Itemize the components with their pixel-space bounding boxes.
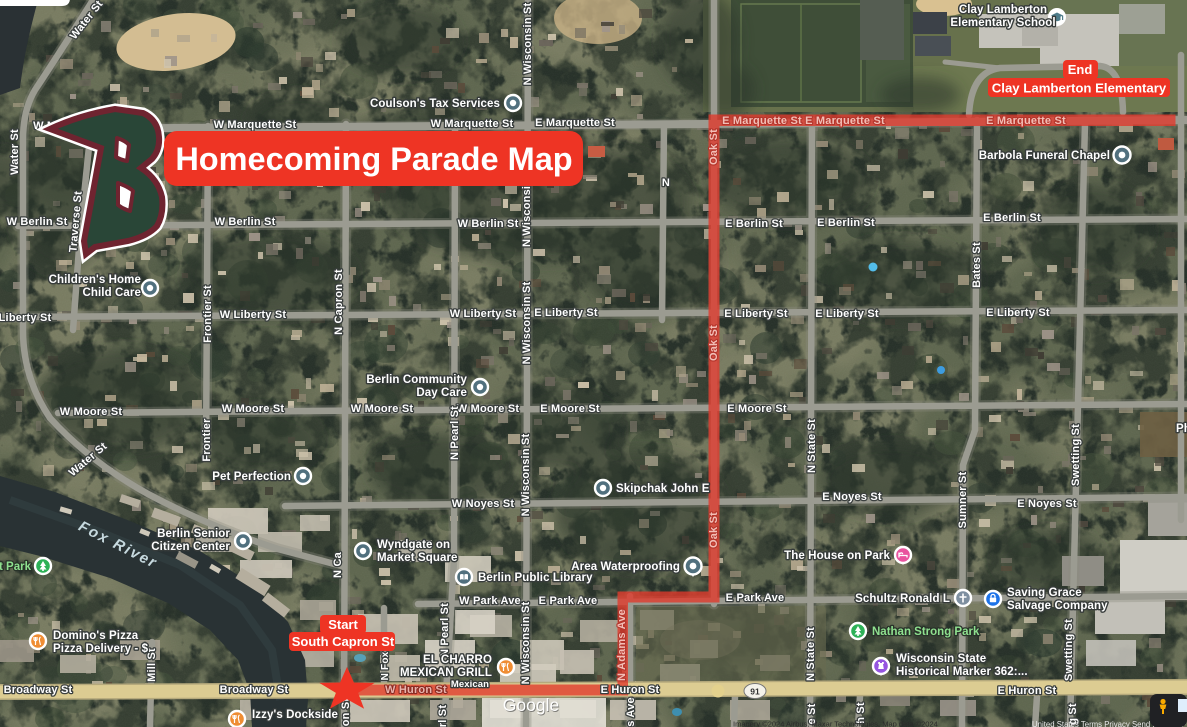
svg-text:Broadway St: Broadway St — [4, 684, 73, 696]
svg-text:N State St: N State St — [806, 419, 818, 473]
svg-text:Children's Home: Children's Home — [49, 274, 141, 286]
svg-text:N Adams Ave: N Adams Ave — [616, 609, 628, 681]
svg-text:The House on Park: The House on Park — [784, 550, 890, 562]
svg-text:N Fox: N Fox — [380, 651, 391, 680]
svg-text:ft Park: ft Park — [0, 561, 32, 573]
svg-text:E Noyes St: E Noyes St — [822, 491, 882, 503]
svg-text:Swetting St: Swetting St — [1063, 619, 1075, 681]
svg-text:W Noyes St: W Noyes St — [452, 498, 515, 510]
svg-text:E Marquette St: E Marquette St — [986, 115, 1066, 127]
svg-text:Clay Lamberton: Clay Lamberton — [959, 4, 1047, 16]
svg-text:Berlin Public Library: Berlin Public Library — [478, 572, 593, 584]
svg-text:Wisconsin State: Wisconsin State — [896, 653, 986, 665]
svg-text:E Huron St: E Huron St — [601, 684, 660, 696]
svg-text:N Pearl St: N Pearl St — [439, 603, 451, 657]
svg-text:N: N — [662, 177, 670, 189]
svg-text:E Liberty St: E Liberty St — [815, 308, 879, 320]
svg-text:E Marquette St: E Marquette St — [535, 117, 615, 129]
svg-text:Market Square: Market Square — [377, 552, 458, 564]
svg-text:91: 91 — [750, 687, 760, 697]
svg-text:Historical Marker 362:...: Historical Marker 362:... — [896, 666, 1028, 678]
svg-text:Nathan Strong Park: Nathan Strong Park — [872, 626, 980, 638]
svg-text:Coulson's Tax Services: Coulson's Tax Services — [370, 98, 500, 110]
svg-text:Area Waterproofing: Area Waterproofing — [571, 561, 680, 573]
svg-text:Wyndgate on: Wyndgate on — [377, 539, 450, 551]
svg-text:N Pearl St: N Pearl St — [449, 406, 461, 460]
svg-text:Citizen Center: Citizen Center — [151, 541, 230, 553]
svg-text:Saving Grace: Saving Grace — [1007, 587, 1082, 599]
svg-text:N Wisconsin St: N Wisconsin St — [522, 2, 534, 85]
svg-text:E Berlin St: E Berlin St — [725, 218, 783, 230]
svg-text:W Moore St: W Moore St — [60, 406, 123, 418]
svg-text:W Berlin St: W Berlin St — [7, 216, 68, 228]
svg-text:EL CHARRO: EL CHARRO — [423, 654, 492, 666]
svg-text:N Wisconsin St: N Wisconsin St — [521, 281, 533, 364]
svg-text:Imagery ©2024 Airbus, Maxar Te: Imagery ©2024 Airbus, Maxar Technologies… — [733, 720, 938, 727]
svg-text:Start: Start — [328, 617, 358, 632]
svg-text:End: End — [1068, 62, 1093, 77]
svg-text:Homecoming Parade Map: Homecoming Parade Map — [175, 141, 572, 177]
svg-text:Domino's Pizza: Domino's Pizza — [53, 630, 139, 642]
svg-text:Google: Google — [503, 695, 559, 715]
svg-text:Swetting St: Swetting St — [1070, 424, 1082, 486]
svg-text:N Wisconsin St: N Wisconsin St — [520, 601, 532, 684]
svg-text:Day Care: Day Care — [416, 387, 467, 399]
svg-text:Frontier St: Frontier St — [202, 285, 214, 343]
svg-text:Oak St: Oak St — [708, 512, 720, 548]
svg-text:Pet Perfection: Pet Perfection — [212, 471, 291, 483]
svg-text:E Moore St: E Moore St — [727, 403, 787, 415]
svg-text:MEXICAN GRILL: MEXICAN GRILL — [400, 667, 492, 679]
svg-text:Liberty St: Liberty St — [0, 312, 51, 324]
svg-text:E Berlin St: E Berlin St — [817, 217, 875, 229]
svg-text:Oak St: Oak St — [708, 325, 720, 361]
svg-text:N Wisconsin: N Wisconsin — [521, 179, 533, 247]
svg-text:E Marquette St: E Marquette St — [805, 115, 885, 127]
svg-text:South Capron St: South Capron St — [292, 634, 395, 649]
svg-text:N Capron St: N Capron St — [333, 269, 345, 335]
svg-text:Water St: Water St — [9, 129, 21, 175]
svg-text:E Liberty St: E Liberty St — [534, 307, 598, 319]
svg-text:N State St: N State St — [805, 627, 817, 681]
svg-text:Salvage Company: Salvage Company — [1007, 600, 1108, 612]
svg-text:Child Care: Child Care — [82, 287, 141, 299]
svg-text:Clay Lamberton Elementary: Clay Lamberton Elementary — [992, 81, 1167, 96]
svg-text:Izzy's Dockside: Izzy's Dockside — [252, 709, 338, 721]
svg-text:Mexican: Mexican — [451, 679, 489, 690]
svg-text:E Liberty St: E Liberty St — [724, 308, 788, 320]
svg-text:Oak St: Oak St — [708, 129, 720, 165]
svg-text:W Marquette St: W Marquette St — [431, 118, 514, 130]
svg-text:W Moore St: W Moore St — [457, 403, 520, 415]
svg-text:W Berlin St: W Berlin St — [458, 218, 519, 230]
svg-text:W Moore St: W Moore St — [351, 403, 414, 415]
svg-text:E Park Ave: E Park Ave — [726, 592, 785, 604]
svg-text:W Berlin St: W Berlin St — [215, 216, 276, 228]
svg-text:Elementary School: Elementary School — [950, 17, 1055, 29]
svg-text:N Wisconsin St: N Wisconsin St — [520, 433, 532, 516]
svg-text:W Huron St: W Huron St — [385, 684, 447, 696]
svg-text:Berlin Senior: Berlin Senior — [157, 528, 230, 540]
svg-text:Pizza Delivery - $: Pizza Delivery - $ — [53, 643, 149, 655]
svg-text:E Berlin St: E Berlin St — [983, 212, 1041, 224]
svg-text:W Park Ave: W Park Ave — [459, 595, 521, 607]
svg-text:W Liberty St: W Liberty St — [450, 308, 517, 320]
svg-text:Schultz Ronald L: Schultz Ronald L — [855, 593, 950, 605]
svg-text:W Liberty St: W Liberty St — [220, 309, 287, 321]
svg-text:E Liberty St: E Liberty St — [986, 307, 1050, 319]
svg-text:Berlin Community: Berlin Community — [366, 374, 467, 386]
svg-text:Barbola Funeral Chapel: Barbola Funeral Chapel — [979, 150, 1110, 162]
svg-text:rl St: rl St — [437, 705, 449, 727]
svg-text:Frontier: Frontier — [201, 418, 213, 462]
svg-text:W Marquette St: W Marquette St — [214, 119, 297, 131]
svg-text:E Huron St: E Huron St — [998, 685, 1057, 697]
svg-text:s Ave: s Ave — [625, 697, 637, 727]
svg-text:E Park Ave: E Park Ave — [539, 595, 598, 607]
svg-text:N Ca: N Ca — [332, 551, 344, 578]
svg-text:W Moore St: W Moore St — [222, 403, 285, 415]
svg-text:E Noyes St: E Noyes St — [1017, 498, 1077, 510]
svg-text:Broadway St: Broadway St — [220, 684, 289, 696]
svg-text:Skipchak John E: Skipchak John E — [616, 483, 710, 495]
svg-text:E Moore St: E Moore St — [540, 403, 600, 415]
svg-text:Sumner St: Sumner St — [957, 471, 969, 528]
svg-text:Ph: Ph — [1176, 423, 1187, 435]
svg-text:E Marquette St: E Marquette St — [722, 115, 802, 127]
svg-text:Bates St: Bates St — [971, 242, 983, 288]
